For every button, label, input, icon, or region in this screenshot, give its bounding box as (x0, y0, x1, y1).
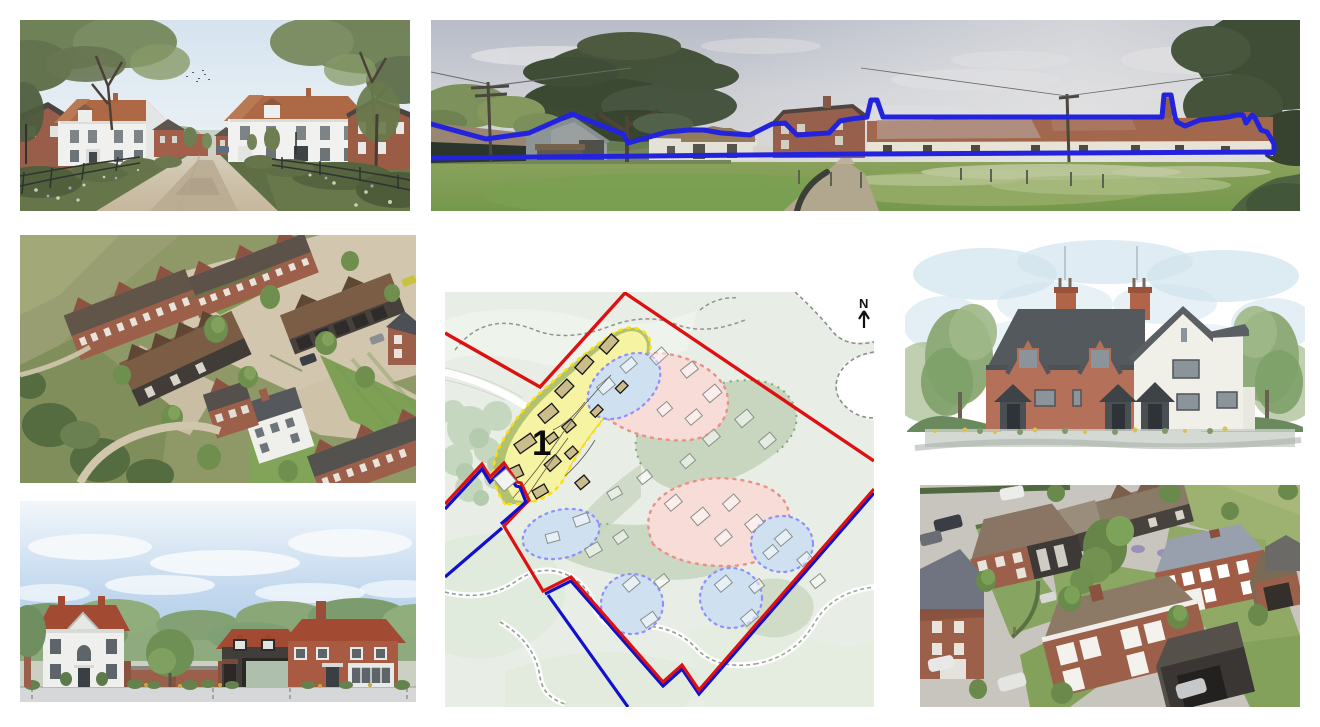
svg-text:N: N (859, 296, 868, 311)
svg-text:1: 1 (532, 424, 551, 463)
